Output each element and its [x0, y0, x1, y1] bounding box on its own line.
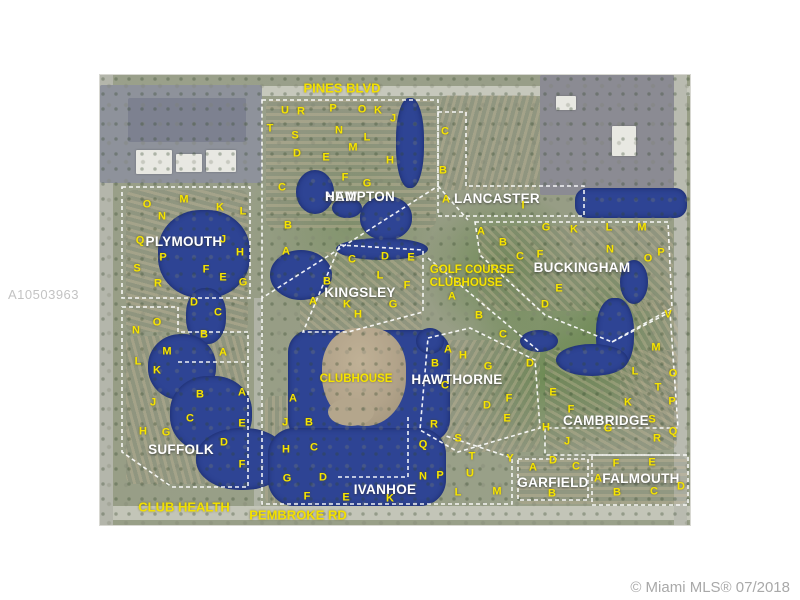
- unit-letter: Y: [506, 454, 513, 465]
- unit-letter: B: [439, 166, 447, 177]
- unit-letter: L: [455, 488, 462, 499]
- unit-letter: E: [322, 153, 329, 164]
- unit-letter: J: [220, 235, 226, 246]
- unit-letter: S: [133, 264, 140, 275]
- neighborhood-label: BUCKINGHAM: [534, 261, 631, 275]
- unit-letter: F: [568, 405, 575, 416]
- unit-letter: D: [677, 482, 685, 493]
- unit-letter: N: [132, 326, 140, 337]
- unit-letter: K: [343, 300, 351, 311]
- unit-letter: R: [430, 420, 438, 431]
- unit-letter: V: [664, 310, 671, 321]
- unit-letter: F: [304, 492, 311, 503]
- unit-letter: Q: [419, 440, 428, 451]
- unit-letter: D: [381, 252, 389, 263]
- unit-letter: H: [459, 351, 467, 362]
- unit-letter: H: [354, 310, 362, 321]
- facility-label: CLUBHOUSE: [320, 373, 393, 385]
- unit-letter: O: [644, 254, 653, 265]
- unit-letter: G: [162, 428, 171, 439]
- unit-letter: N: [335, 126, 343, 137]
- mls-credit: © Miami MLS® 07/2018: [630, 579, 790, 596]
- unit-letter: D: [483, 401, 491, 412]
- unit-letter: A: [444, 345, 452, 356]
- unit-letter: F: [537, 250, 544, 261]
- unit-letter: G: [604, 424, 613, 435]
- neighborhood-label: HAWTHORNE: [411, 373, 502, 387]
- unit-letter: F: [506, 394, 513, 405]
- unit-letter: A: [238, 388, 246, 399]
- unit-letter: B: [499, 238, 507, 249]
- unit-letter: M: [492, 487, 501, 498]
- unit-letter: S: [291, 131, 298, 142]
- unit-letter: O: [153, 318, 162, 329]
- unit-letter: C: [441, 127, 449, 138]
- unit-letter: C: [650, 487, 658, 498]
- unit-letter: N: [419, 472, 427, 483]
- unit-letter: J: [282, 418, 288, 429]
- neighborhood-label: IVANHOE: [354, 483, 417, 497]
- neighborhood-label: PLYMOUTH: [146, 235, 223, 249]
- unit-letter: B: [323, 277, 331, 288]
- unit-letter: C: [186, 414, 194, 425]
- unit-letter: S: [648, 415, 655, 426]
- unit-letter: E: [549, 388, 556, 399]
- unit-letter: N: [158, 212, 166, 223]
- unit-letter: C: [214, 308, 222, 319]
- unit-letter: H: [282, 445, 290, 456]
- unit-letter: M: [162, 347, 171, 358]
- unit-letter: A: [594, 474, 602, 485]
- unit-letter: L: [364, 133, 371, 144]
- unit-letter: L: [377, 271, 384, 282]
- unit-letter: K: [386, 494, 394, 505]
- unit-letter: F: [404, 281, 411, 292]
- unit-letter: K: [374, 106, 382, 117]
- unit-letter: E: [648, 458, 655, 469]
- unit-letter: A: [529, 463, 537, 474]
- unit-letter: J: [390, 114, 396, 125]
- unit-letter: C: [499, 330, 507, 341]
- unit-letter: D: [541, 300, 549, 311]
- unit-letter: U: [466, 469, 474, 480]
- unit-letter: T: [267, 124, 274, 135]
- unit-letter: G: [283, 474, 292, 485]
- facility-label: CLUBHOUSE: [430, 277, 503, 289]
- unit-letter: L: [240, 207, 247, 218]
- unit-letter: M: [179, 195, 188, 206]
- unit-letter: R: [653, 434, 661, 445]
- unit-letter: B: [548, 489, 556, 500]
- unit-letter: A: [477, 227, 485, 238]
- unit-letter: K: [624, 398, 632, 409]
- unit-letter: S: [454, 434, 461, 445]
- unit-letter: C: [348, 255, 356, 266]
- unit-letter: D: [190, 298, 198, 309]
- unit-letter: P: [668, 397, 675, 408]
- unit-letter: O: [669, 369, 678, 380]
- unit-letter: B: [431, 359, 439, 370]
- neighborhood-label: KINGSLEY: [324, 286, 395, 300]
- unit-letter: B: [475, 311, 483, 322]
- unit-letter: B: [613, 488, 621, 499]
- unit-letter: L: [135, 357, 142, 368]
- neighborhood-label: SUFFOLK: [148, 443, 214, 457]
- unit-letter: R: [297, 107, 305, 118]
- map-labels-layer: PINES BLVDPEMBROKE RDCLUB HEALTHNEWHAMPT…: [100, 75, 690, 525]
- unit-letter: K: [570, 225, 578, 236]
- road-label: CLUB HEALTH: [138, 500, 229, 515]
- satellite-map: PINES BLVDPEMBROKE RDCLUB HEALTHNEWHAMPT…: [100, 75, 690, 525]
- unit-letter: F: [203, 265, 210, 276]
- unit-letter: E: [555, 284, 562, 295]
- unit-letter: O: [358, 105, 367, 116]
- unit-letter: G: [542, 223, 551, 234]
- unit-letter: E: [219, 273, 226, 284]
- unit-letter: B: [284, 221, 292, 232]
- unit-letter: A: [442, 195, 450, 206]
- mls-watermark: A10503963: [8, 287, 79, 302]
- unit-letter: C: [310, 443, 318, 454]
- unit-letter: R: [154, 279, 162, 290]
- unit-letter: D: [220, 438, 228, 449]
- unit-letter: A: [289, 394, 297, 405]
- unit-letter: K: [153, 366, 161, 377]
- unit-letter: P: [657, 248, 664, 259]
- unit-letter: E: [407, 253, 414, 264]
- unit-letter: N: [606, 245, 614, 256]
- unit-letter: H: [386, 156, 394, 167]
- unit-letter: T: [655, 383, 662, 394]
- unit-letter: M: [637, 223, 646, 234]
- unit-letter: J: [564, 437, 570, 448]
- unit-letter: D: [549, 456, 557, 467]
- unit-letter: C: [516, 252, 524, 263]
- unit-letter: B: [196, 390, 204, 401]
- unit-letter: U: [281, 106, 289, 117]
- unit-letter: L: [606, 223, 613, 234]
- unit-letter: T: [469, 452, 476, 463]
- unit-letter: H: [542, 423, 550, 434]
- road-label: PEMBROKE RD: [249, 508, 347, 523]
- unit-letter: B: [305, 418, 313, 429]
- unit-letter: H: [139, 427, 147, 438]
- unit-letter: A: [219, 348, 227, 359]
- unit-letter: D: [293, 149, 301, 160]
- unit-letter: F: [342, 173, 349, 184]
- unit-letter: L: [632, 367, 639, 378]
- listing-photo-page: { "page":{"background":"#ffffff"}, "wate…: [0, 0, 800, 600]
- neighborhood-label: LANCASTER: [454, 192, 540, 206]
- unit-letter: P: [329, 104, 336, 115]
- unit-letter: E: [238, 419, 245, 430]
- unit-letter: M: [651, 343, 660, 354]
- unit-letter: D: [526, 359, 534, 370]
- unit-letter: K: [216, 203, 224, 214]
- unit-letter: A: [448, 292, 456, 303]
- unit-letter: O: [143, 200, 152, 211]
- unit-letter: C: [441, 381, 449, 392]
- neighborhood-label: FALMOUTH: [602, 472, 679, 486]
- unit-letter: Q: [136, 236, 145, 247]
- unit-letter: G: [389, 300, 398, 311]
- unit-letter: C: [278, 183, 286, 194]
- unit-letter: E: [503, 414, 510, 425]
- unit-letter: F: [613, 459, 620, 470]
- unit-letter: P: [436, 471, 443, 482]
- unit-letter: J: [150, 398, 156, 409]
- unit-letter: D: [319, 473, 327, 484]
- unit-letter: G: [239, 278, 248, 289]
- unit-letter: P: [159, 253, 166, 264]
- unit-letter: G: [484, 362, 493, 373]
- unit-letter: B: [200, 330, 208, 341]
- facility-label: GOLF COURSE: [430, 264, 514, 276]
- unit-letter: I: [521, 201, 524, 212]
- unit-letter: F: [239, 460, 246, 471]
- road-label: PINES BLVD: [303, 81, 380, 96]
- unit-letter: M: [348, 143, 357, 154]
- unit-letter: A: [309, 297, 317, 308]
- unit-letter: C: [572, 462, 580, 473]
- unit-letter: G: [363, 179, 372, 190]
- unit-letter: H: [236, 248, 244, 259]
- unit-letter: Q: [669, 427, 678, 438]
- unit-letter: E: [342, 493, 349, 504]
- unit-letter: A: [282, 247, 290, 258]
